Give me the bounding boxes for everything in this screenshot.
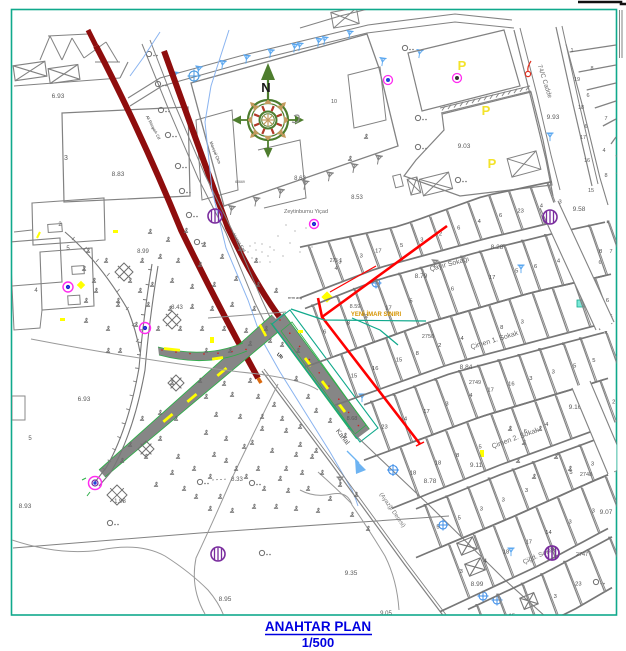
svg-text:8: 8 xyxy=(347,321,350,327)
svg-text:P: P xyxy=(482,103,491,118)
svg-text:5: 5 xyxy=(400,243,403,249)
svg-text:3: 3 xyxy=(460,569,463,575)
svg-text:8.99: 8.99 xyxy=(137,249,149,255)
svg-text:17: 17 xyxy=(580,135,586,141)
svg-text:15: 15 xyxy=(396,357,402,363)
svg-text:3: 3 xyxy=(592,508,595,514)
svg-text:P: P xyxy=(488,156,497,171)
svg-text:8: 8 xyxy=(599,249,602,255)
svg-text:3: 3 xyxy=(591,462,594,468)
svg-text:rrrm avş: rrrm avş xyxy=(288,296,302,300)
svg-text:8.53: 8.53 xyxy=(351,195,363,201)
svg-text:5: 5 xyxy=(515,269,518,275)
svg-text:9.03: 9.03 xyxy=(458,143,471,150)
svg-text:17: 17 xyxy=(375,248,381,254)
svg-text:15: 15 xyxy=(588,188,594,194)
svg-text:5: 5 xyxy=(569,470,572,476)
svg-text:7: 7 xyxy=(609,249,612,255)
svg-text:8.84: 8.84 xyxy=(460,364,473,371)
svg-text:16: 16 xyxy=(584,158,590,164)
svg-text:60669: 60669 xyxy=(235,180,245,184)
svg-text:8.79: 8.79 xyxy=(415,273,428,280)
svg-text:2750: 2750 xyxy=(422,334,434,340)
svg-text:8.93: 8.93 xyxy=(19,503,32,510)
svg-text:23: 23 xyxy=(381,424,387,430)
svg-text:3: 3 xyxy=(521,319,524,325)
svg-text:8.95: 8.95 xyxy=(219,596,232,603)
svg-text:23: 23 xyxy=(517,208,523,214)
svg-text:3: 3 xyxy=(554,594,557,600)
svg-text:5: 5 xyxy=(458,516,461,522)
svg-text:8.68: 8.68 xyxy=(347,416,358,422)
svg-text:8: 8 xyxy=(500,325,503,331)
svg-text:6.93: 6.93 xyxy=(52,93,65,100)
svg-text:9.11: 9.11 xyxy=(470,462,483,469)
svg-text:8.63: 8.63 xyxy=(294,176,306,182)
svg-text:8.33: 8.33 xyxy=(231,477,243,483)
svg-text:9.35: 9.35 xyxy=(345,570,358,577)
svg-text:1/500: 1/500 xyxy=(302,635,335,650)
svg-text:2748: 2748 xyxy=(580,472,592,478)
svg-text:6: 6 xyxy=(499,213,502,219)
svg-text:ANAHTAR PLAN: ANAHTAR PLAN xyxy=(265,619,371,634)
svg-text:16: 16 xyxy=(372,366,378,372)
svg-text:2: 2 xyxy=(438,343,441,349)
svg-text:14: 14 xyxy=(545,530,552,536)
svg-text:9.07: 9.07 xyxy=(600,509,613,516)
svg-text:8.59: 8.59 xyxy=(350,304,361,310)
svg-text:17: 17 xyxy=(423,409,429,415)
svg-text:8.99: 8.99 xyxy=(471,581,484,588)
svg-text:17: 17 xyxy=(489,275,495,281)
svg-text:16: 16 xyxy=(508,382,514,388)
svg-text:6.93: 6.93 xyxy=(78,396,91,403)
svg-text:3: 3 xyxy=(480,506,483,512)
svg-text:8: 8 xyxy=(590,66,593,72)
svg-text:8: 8 xyxy=(456,453,459,459)
svg-text:3: 3 xyxy=(525,488,528,494)
svg-text:3: 3 xyxy=(360,253,363,259)
svg-text:8: 8 xyxy=(416,351,419,357)
svg-text:4: 4 xyxy=(602,148,605,154)
svg-text:6: 6 xyxy=(457,226,460,232)
svg-text:8.43: 8.43 xyxy=(171,305,183,311)
svg-text:23: 23 xyxy=(575,582,581,588)
svg-text:6: 6 xyxy=(606,298,609,304)
svg-text:3: 3 xyxy=(529,376,532,382)
svg-text:5: 5 xyxy=(436,524,439,530)
svg-text:17: 17 xyxy=(526,539,532,545)
svg-text:17: 17 xyxy=(385,306,391,312)
svg-text:2747: 2747 xyxy=(576,552,588,558)
svg-text:1: 1 xyxy=(570,48,573,54)
svg-text:8.28: 8.28 xyxy=(491,244,504,251)
svg-text:15: 15 xyxy=(351,374,357,380)
svg-text:275 1: 275 1 xyxy=(330,258,343,264)
svg-text:6: 6 xyxy=(584,124,587,130)
svg-text:3: 3 xyxy=(502,497,505,503)
svg-text:18: 18 xyxy=(578,105,584,111)
svg-text:9.58: 9.58 xyxy=(573,206,586,213)
svg-text:6: 6 xyxy=(451,286,454,292)
svg-text:3: 3 xyxy=(568,520,571,526)
svg-text:4: 4 xyxy=(334,266,337,272)
svg-text:N: N xyxy=(261,80,270,95)
svg-text:18: 18 xyxy=(503,550,509,556)
svg-text:5: 5 xyxy=(478,445,481,451)
svg-text:8.83: 8.83 xyxy=(112,171,125,178)
svg-text:3: 3 xyxy=(64,155,68,162)
svg-text:3: 3 xyxy=(445,401,448,407)
svg-text:6: 6 xyxy=(534,264,537,270)
svg-text:2: 2 xyxy=(612,400,615,406)
svg-text:6: 6 xyxy=(323,330,326,336)
svg-text:18: 18 xyxy=(435,461,441,467)
svg-text:7: 7 xyxy=(604,116,607,122)
svg-text:Zeytinburnu Yiçad: Zeytinburnu Yiçad xyxy=(284,209,328,215)
svg-text:P: P xyxy=(458,58,467,73)
svg-text:18: 18 xyxy=(410,470,416,476)
svg-text:9.93: 9.93 xyxy=(547,114,560,121)
svg-text:5: 5 xyxy=(592,358,595,364)
svg-text:19: 19 xyxy=(574,77,580,83)
svg-text:2749: 2749 xyxy=(469,380,481,386)
svg-text:5: 5 xyxy=(409,298,412,304)
svg-text:6: 6 xyxy=(586,93,589,99)
svg-text:17: 17 xyxy=(487,387,493,393)
svg-text:3: 3 xyxy=(552,370,555,376)
svg-text:YENİ İMAR SINIRI: YENİ İMAR SINIRI xyxy=(351,311,402,318)
svg-text:8: 8 xyxy=(604,173,607,179)
svg-text:5: 5 xyxy=(573,364,576,370)
svg-text:10: 10 xyxy=(331,99,337,105)
svg-text:8.78: 8.78 xyxy=(424,478,437,485)
